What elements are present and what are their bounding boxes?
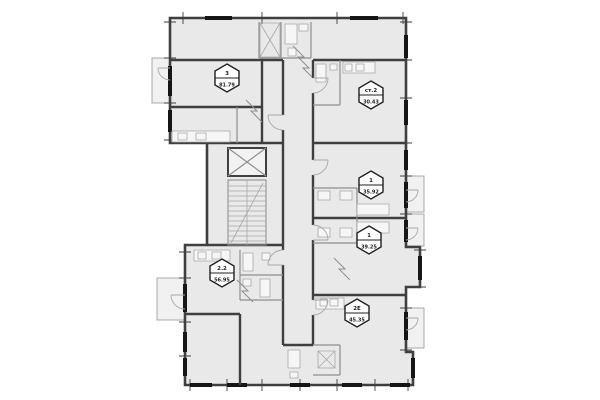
unit-area-label: 35.92 bbox=[363, 190, 379, 196]
balcony-rect bbox=[406, 308, 424, 348]
unit-badge-1b[interactable]: 1 39.25 bbox=[357, 226, 381, 254]
unit-type-label: ст.2 bbox=[365, 88, 378, 94]
elevator-icon bbox=[228, 148, 266, 176]
balcony-rect bbox=[406, 214, 424, 246]
unit-area-label: 39.25 bbox=[361, 245, 377, 251]
unit-type-label: 1 bbox=[367, 233, 371, 239]
unit-type-label: 3 bbox=[225, 71, 229, 77]
unit-area-label: 30.43 bbox=[363, 100, 379, 106]
balcony-rect bbox=[157, 278, 185, 320]
balcony-rect bbox=[152, 58, 170, 103]
unit-badge-st2[interactable]: ст.2 30.43 bbox=[359, 81, 383, 109]
floor-plan-page: 3 81.79 ст.2 30.43 1 35.92 1 39.25 bbox=[0, 0, 600, 400]
balcony-rect bbox=[406, 176, 424, 212]
unit-type-label: 1 bbox=[369, 178, 373, 184]
unit-area-label: 56.95 bbox=[214, 278, 230, 284]
floor-plan-drawing: 3 81.79 ст.2 30.43 1 35.92 1 39.25 bbox=[0, 0, 600, 400]
unit-area-label: 45.35 bbox=[349, 318, 365, 324]
building-outline bbox=[170, 18, 420, 385]
unit-type-label: 2.2 bbox=[217, 266, 227, 272]
unit-badge-1a[interactable]: 1 35.92 bbox=[359, 171, 383, 199]
unit-badge-3[interactable]: 3 81.79 bbox=[215, 64, 239, 92]
unit-badge-22[interactable]: 2.2 56.95 bbox=[210, 259, 234, 287]
unit-type-label: 2Е bbox=[353, 306, 361, 312]
unit-badge-2e[interactable]: 2Е 45.35 bbox=[345, 299, 369, 327]
unit-area-label: 81.79 bbox=[219, 83, 235, 89]
